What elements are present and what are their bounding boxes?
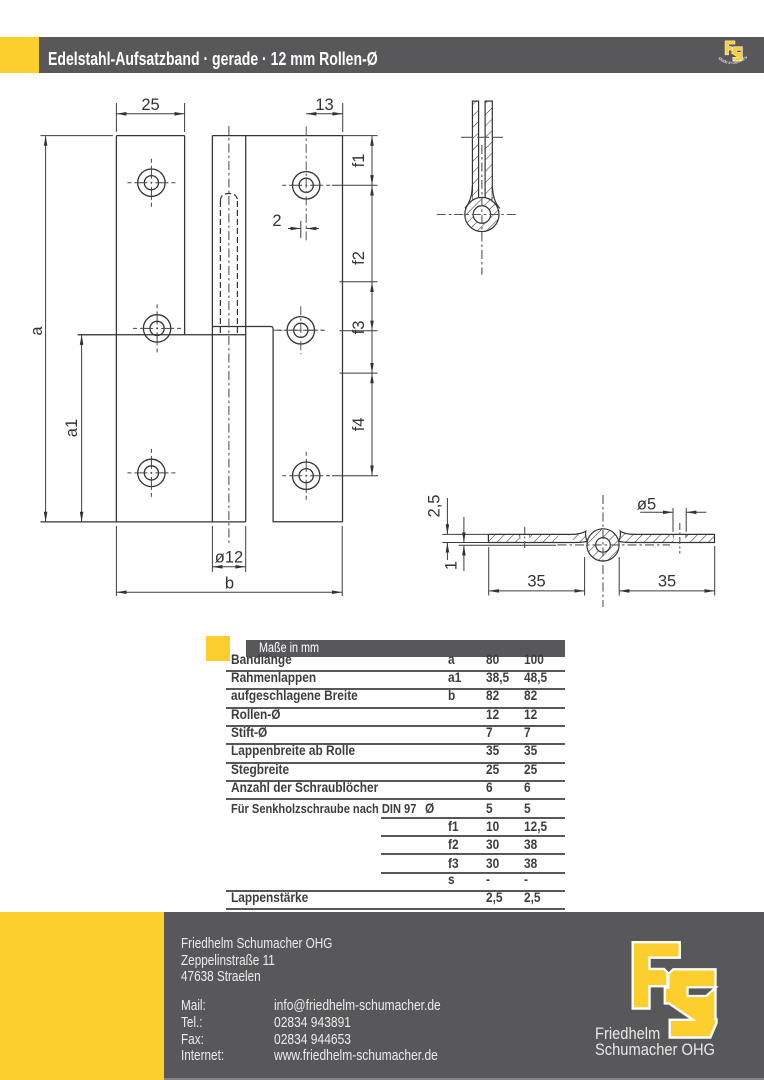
- svg-text:2: 2: [272, 212, 281, 230]
- svg-text:ø5: ø5: [637, 496, 656, 514]
- svg-text:13: 13: [315, 96, 333, 114]
- svg-text:b: b: [225, 575, 234, 593]
- svg-text:2,5: 2,5: [426, 495, 444, 518]
- svg-text:25: 25: [141, 96, 159, 114]
- svg-text:35: 35: [658, 573, 676, 591]
- svg-text:1: 1: [443, 561, 461, 570]
- svg-text:f1: f1: [350, 154, 368, 168]
- svg-text:f3: f3: [350, 321, 368, 335]
- svg-text:f2: f2: [350, 251, 368, 265]
- svg-text:a: a: [28, 326, 46, 336]
- svg-text:ø12: ø12: [215, 549, 243, 567]
- svg-text:f4: f4: [350, 418, 368, 432]
- svg-text:a1: a1: [63, 419, 81, 437]
- svg-text:35: 35: [527, 573, 545, 591]
